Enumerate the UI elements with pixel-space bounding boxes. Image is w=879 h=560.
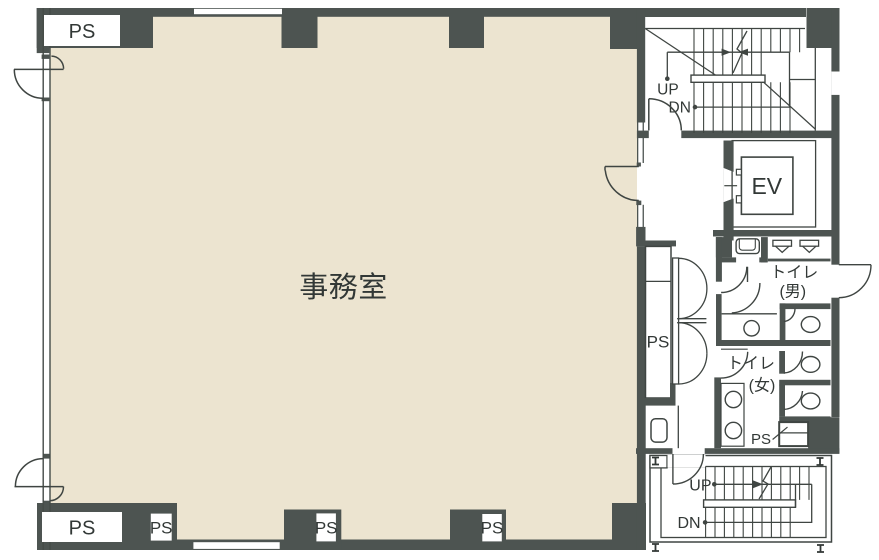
svg-text:PS: PS [150,519,173,538]
svg-text:(女): (女) [749,376,776,395]
svg-text:PS: PS [751,431,771,448]
svg-text:UP: UP [689,477,711,494]
svg-text:DN: DN [677,515,700,532]
svg-text:EV: EV [751,173,782,199]
svg-text:トイレ: トイレ [770,265,818,282]
svg-text:事務室: 事務室 [299,271,388,304]
svg-text:PS: PS [481,519,504,538]
svg-text:PS: PS [69,21,96,43]
svg-text:PS: PS [647,333,670,352]
svg-text:(男): (男) [779,284,806,301]
svg-text:トイレ: トイレ [727,356,775,373]
svg-text:PS: PS [69,518,96,540]
svg-text:PS: PS [315,519,338,538]
svg-text:UP: UP [657,81,679,98]
